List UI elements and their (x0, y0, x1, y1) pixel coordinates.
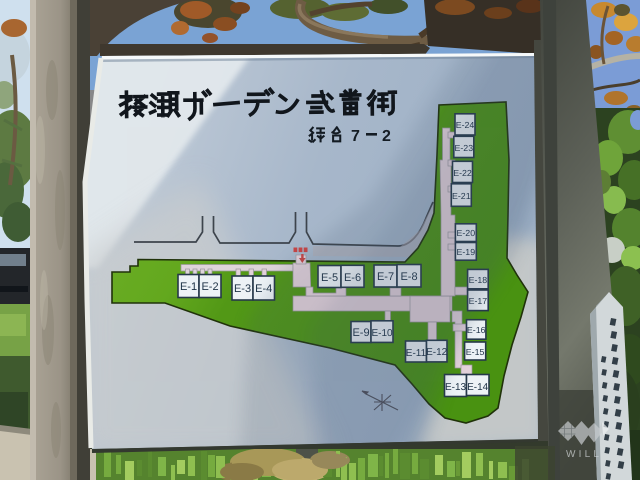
svg-text:E-15: E-15 (466, 347, 485, 357)
svg-text:E-14: E-14 (467, 382, 489, 393)
svg-text:E-2: E-2 (201, 281, 218, 293)
svg-text:E-3: E-3 (234, 283, 251, 295)
svg-text:E-1: E-1 (180, 281, 197, 293)
svg-text:E-16: E-16 (467, 325, 486, 335)
svg-text:WILL: WILL (566, 449, 602, 460)
svg-text:E-13: E-13 (445, 382, 467, 393)
svg-text:7: 7 (351, 128, 360, 145)
svg-text:2: 2 (382, 128, 391, 145)
